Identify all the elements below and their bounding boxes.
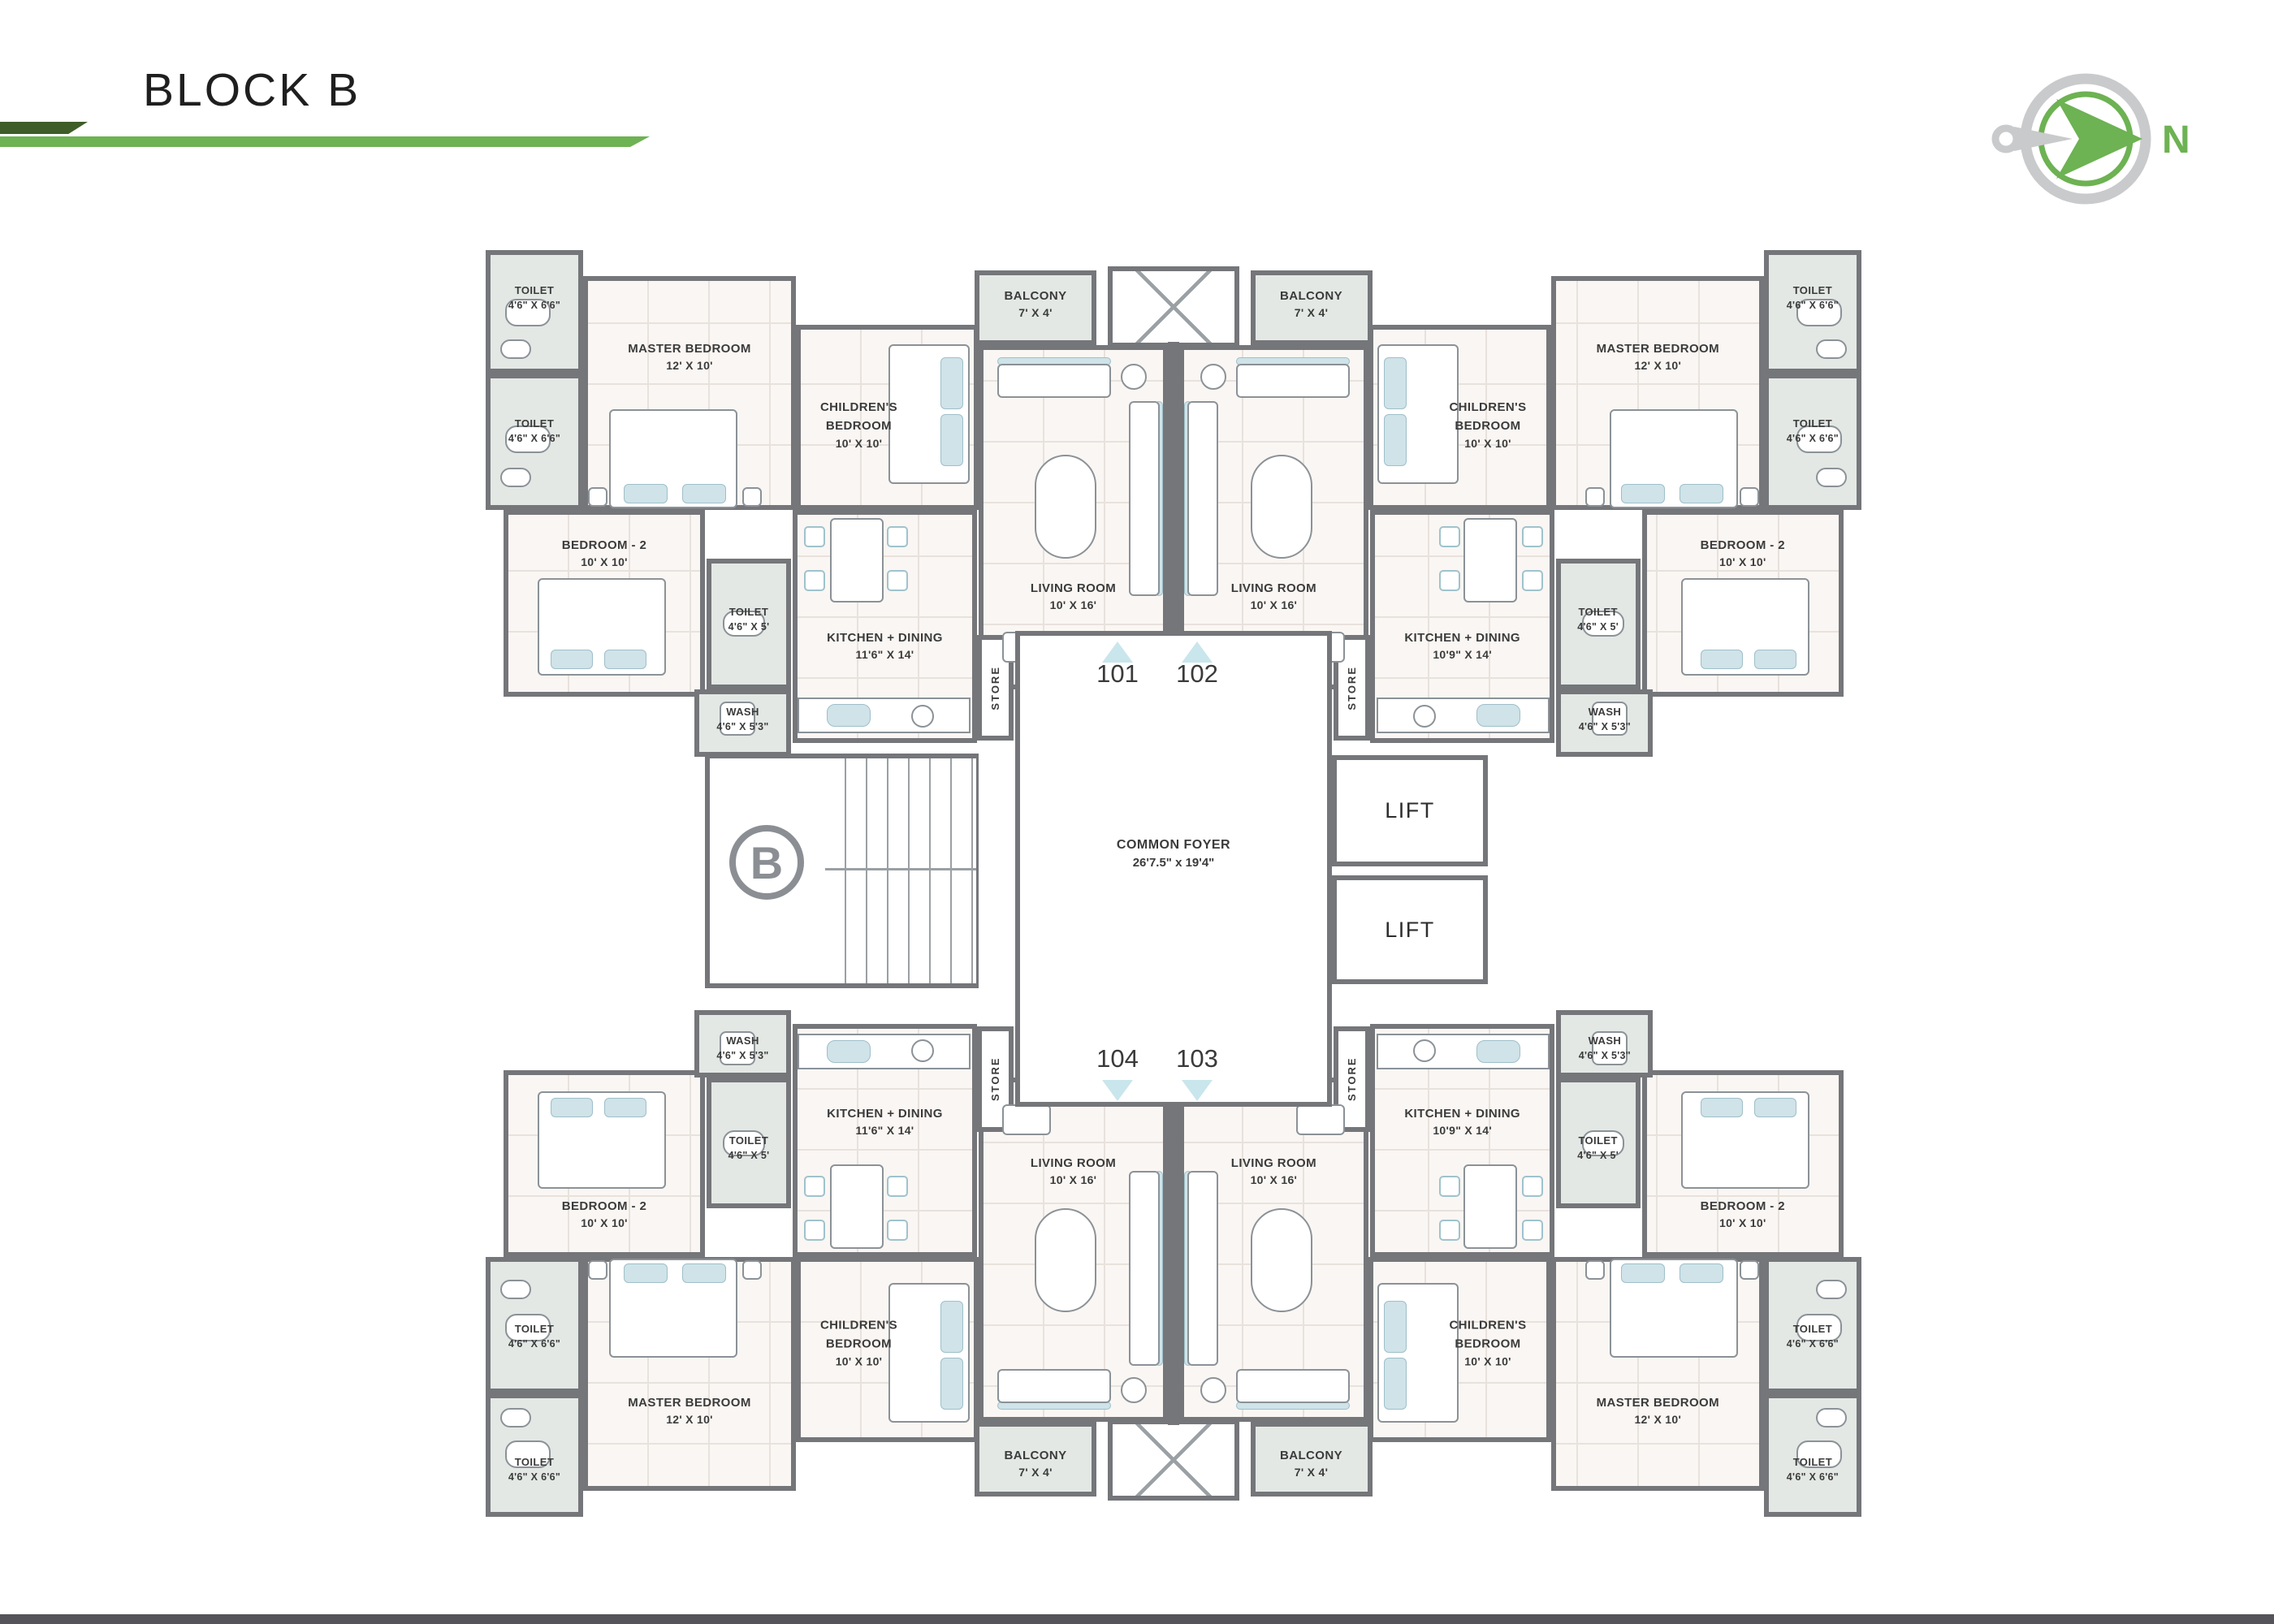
duct-void xyxy=(1108,1419,1239,1501)
dining-chair-symbol xyxy=(887,570,908,591)
washbasin-symbol xyxy=(500,468,531,487)
stove-symbol xyxy=(1476,1040,1520,1063)
kitchen-counter-symbol xyxy=(1377,698,1550,733)
sofa-symbol xyxy=(997,364,1111,398)
common-foyer-label: COMMON FOYER 26'7.5" x 19'4" xyxy=(1015,838,1332,870)
room-toilet-1: TOILET4'6" X 6'6" xyxy=(1764,250,1861,374)
nightstand-symbol xyxy=(1740,487,1759,507)
lift-1: LIFT xyxy=(1332,755,1488,866)
sofa-symbol xyxy=(1187,401,1218,596)
sofa-symbol xyxy=(1236,1369,1350,1403)
entry-arrow-104 xyxy=(1102,1080,1133,1101)
pillow-symbol xyxy=(1621,1263,1665,1283)
washbasin-symbol xyxy=(500,339,531,359)
dining-chair-symbol xyxy=(1522,1176,1543,1197)
room-toilet-2: TOILET4'6" X 6'6" xyxy=(1764,374,1861,510)
armchair-symbol xyxy=(1296,1104,1345,1135)
nightstand-symbol xyxy=(1585,487,1605,507)
stool-symbol xyxy=(1121,364,1147,390)
room-wash: WASH4'6" X 5'3" xyxy=(1556,1010,1653,1078)
sink-symbol xyxy=(911,705,934,728)
unit-number-104: 104 xyxy=(1088,1044,1147,1073)
dining-chair-symbol xyxy=(804,570,825,591)
room-toilet-2: TOILET4'6" X 6'6" xyxy=(1764,1257,1861,1393)
pillow-symbol xyxy=(940,357,963,409)
dining-chair-symbol xyxy=(1439,570,1460,591)
north-compass-icon: N xyxy=(1982,54,2258,226)
pillow-symbol xyxy=(1384,1301,1407,1353)
pillow-symbol xyxy=(551,1098,593,1117)
pillow-symbol xyxy=(1680,484,1723,503)
room-toilet-3: TOILET4'6" X 5' xyxy=(1556,1078,1641,1208)
room-toilet-2: TOILET4'6" X 6'6" xyxy=(486,1257,583,1393)
dining-chair-symbol xyxy=(1522,570,1543,591)
pillow-symbol xyxy=(624,1263,668,1283)
dining-chair-symbol xyxy=(804,1176,825,1197)
sofa-symbol xyxy=(1129,401,1160,596)
room-wash: WASH4'6" X 5'3" xyxy=(694,689,791,757)
stool-symbol xyxy=(1200,1377,1226,1403)
pillow-symbol xyxy=(940,414,963,466)
dining-table-symbol xyxy=(830,1164,884,1249)
dining-chair-symbol xyxy=(804,526,825,547)
nightstand-symbol xyxy=(742,1260,762,1280)
lift-2: LIFT xyxy=(1332,875,1488,984)
sofa-symbol xyxy=(1129,1171,1160,1366)
coffee-table-symbol xyxy=(1035,1208,1096,1312)
room-toilet-2: TOILET4'6" X 6'6" xyxy=(486,374,583,510)
page-title: BLOCK B xyxy=(143,63,361,117)
dining-chair-symbol xyxy=(887,1176,908,1197)
pillow-symbol xyxy=(1384,1358,1407,1410)
pillow-symbol xyxy=(1701,650,1743,669)
pillow-symbol xyxy=(940,1301,963,1353)
pillow-symbol xyxy=(940,1358,963,1410)
room-balcony: BALCONY7' X 4' xyxy=(1251,270,1373,345)
pillow-symbol xyxy=(1621,484,1665,503)
unit-number-101: 101 xyxy=(1088,659,1147,689)
dining-table-symbol xyxy=(830,518,884,603)
dining-table-symbol xyxy=(1463,518,1517,603)
unit-number-102: 102 xyxy=(1168,659,1226,689)
central-wall xyxy=(1168,1078,1179,1425)
stairs xyxy=(825,758,976,983)
sink-symbol xyxy=(1413,1039,1436,1062)
sofa-symbol xyxy=(1236,364,1350,398)
coffee-table-symbol xyxy=(1251,455,1312,559)
stove-symbol xyxy=(827,704,871,727)
sofa-symbol xyxy=(1187,1171,1218,1366)
pillow-symbol xyxy=(682,1263,726,1283)
room-balcony: BALCONY7' X 4' xyxy=(975,1422,1096,1497)
pillow-symbol xyxy=(624,484,668,503)
dining-chair-symbol xyxy=(804,1220,825,1241)
duct-void xyxy=(1108,266,1239,348)
dining-chair-symbol xyxy=(887,526,908,547)
washbasin-symbol xyxy=(1816,339,1847,359)
room-balcony: BALCONY7' X 4' xyxy=(975,270,1096,345)
washbasin-symbol xyxy=(1816,1408,1847,1427)
sink-symbol xyxy=(1413,705,1436,728)
dining-chair-symbol xyxy=(1522,1220,1543,1241)
dining-chair-symbol xyxy=(1439,1176,1460,1197)
entry-arrow-103 xyxy=(1182,1080,1213,1101)
dining-table-symbol xyxy=(1463,1164,1517,1249)
washbasin-symbol xyxy=(500,1280,531,1299)
nightstand-symbol xyxy=(588,1260,607,1280)
armchair-symbol xyxy=(1002,1104,1051,1135)
pillow-symbol xyxy=(1384,357,1407,409)
kitchen-counter-symbol xyxy=(798,698,971,733)
kitchen-counter-symbol xyxy=(1377,1034,1550,1069)
washbasin-symbol xyxy=(1816,1280,1847,1299)
stove-symbol xyxy=(827,1040,871,1063)
coffee-table-symbol xyxy=(1035,455,1096,559)
room-toilet-1: TOILET4'6" X 6'6" xyxy=(486,250,583,374)
nightstand-symbol xyxy=(1585,1260,1605,1280)
washbasin-symbol xyxy=(1816,468,1847,487)
floor-plan-page: BLOCK B N TOILET4'6" X 6'6" TOILET4'6" X… xyxy=(0,0,2274,1624)
block-badge: B xyxy=(729,825,804,900)
dining-chair-symbol xyxy=(1439,526,1460,547)
room-balcony: BALCONY7' X 4' xyxy=(1251,1422,1373,1497)
room-toilet-3: TOILET4'6" X 5' xyxy=(1556,559,1641,689)
kitchen-counter-symbol xyxy=(798,1034,971,1069)
pillow-symbol xyxy=(551,650,593,669)
room-toilet-3: TOILET4'6" X 5' xyxy=(707,1078,791,1208)
pillow-symbol xyxy=(604,650,646,669)
compass-north-label: N xyxy=(2162,119,2190,162)
stool-symbol xyxy=(1200,364,1226,390)
washbasin-symbol xyxy=(500,1408,531,1427)
dining-chair-symbol xyxy=(887,1220,908,1241)
stove-symbol xyxy=(1476,704,1520,727)
pillow-symbol xyxy=(1680,1263,1723,1283)
nightstand-symbol xyxy=(588,487,607,507)
title-underline-dark xyxy=(0,122,88,134)
nightstand-symbol xyxy=(742,487,762,507)
pillow-symbol xyxy=(1701,1098,1743,1117)
room-wash: WASH4'6" X 5'3" xyxy=(694,1010,791,1078)
coffee-table-symbol xyxy=(1251,1208,1312,1312)
nightstand-symbol xyxy=(1740,1260,1759,1280)
title-underline-green xyxy=(0,136,650,147)
pillow-symbol xyxy=(1384,414,1407,466)
sofa-symbol xyxy=(997,1369,1111,1403)
stair-landing-line xyxy=(825,868,976,870)
stool-symbol xyxy=(1121,1377,1147,1403)
sink-symbol xyxy=(911,1039,934,1062)
pillow-symbol xyxy=(1754,1098,1796,1117)
footer-bar xyxy=(0,1614,2274,1624)
room-toilet-1: TOILET4'6" X 6'6" xyxy=(1764,1393,1861,1517)
dining-chair-symbol xyxy=(1522,526,1543,547)
pillow-symbol xyxy=(682,484,726,503)
dining-chair-symbol xyxy=(1439,1220,1460,1241)
room-toilet-1: TOILET4'6" X 6'6" xyxy=(486,1393,583,1517)
unit-number-103: 103 xyxy=(1168,1044,1226,1073)
pillow-symbol xyxy=(1754,650,1796,669)
room-toilet-3: TOILET4'6" X 5' xyxy=(707,559,791,689)
pillow-symbol xyxy=(604,1098,646,1117)
room-wash: WASH4'6" X 5'3" xyxy=(1556,689,1653,757)
